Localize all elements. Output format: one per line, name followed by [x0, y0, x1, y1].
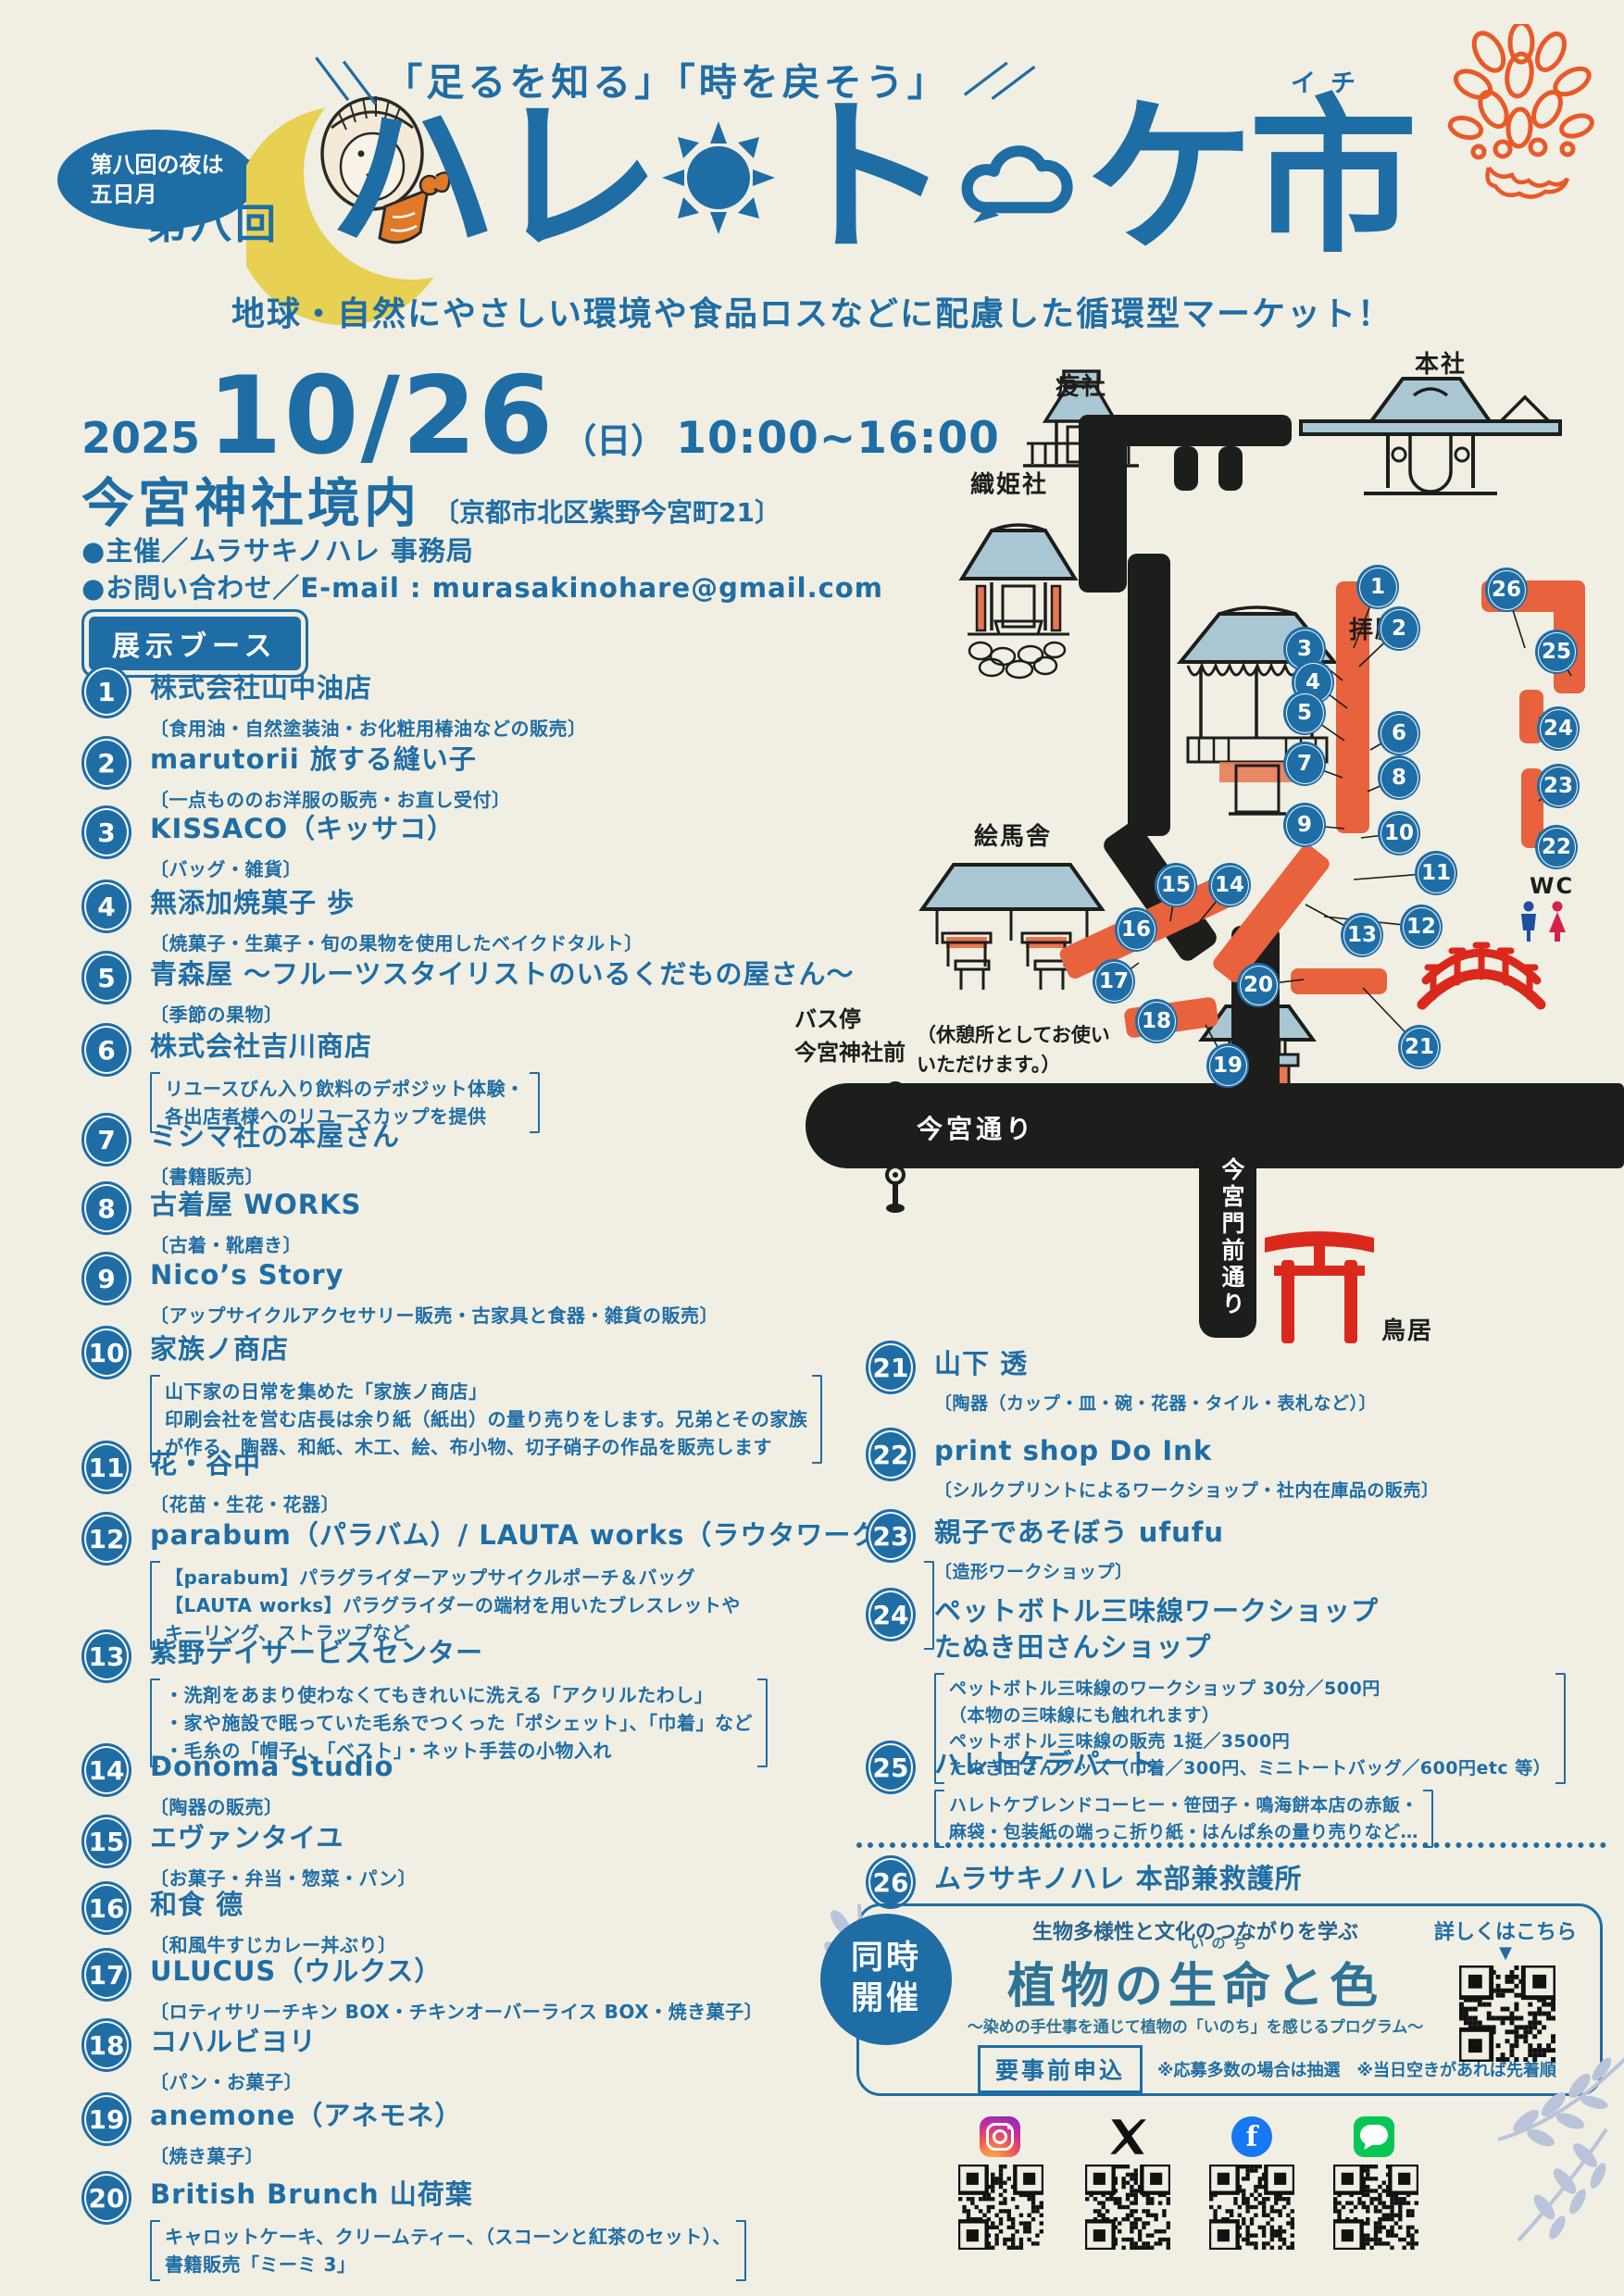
- poster: { "colors":{"blue":"#1f6da5","orange":"#…: [0, 0, 1624, 2296]
- title-char: レ: [492, 94, 655, 262]
- event-title: ハ レ ト ケ イチ市: [329, 78, 1412, 277]
- map-booth-markers: 1234567891011121314151617181920212223242…: [778, 329, 1624, 1356]
- booth-number: 15: [81, 1815, 131, 1868]
- social-x: [1107, 2116, 1148, 2161]
- booth-number: 18: [81, 2018, 131, 2072]
- title-furigana: イチ: [1291, 71, 1370, 96]
- booth-number: 17: [81, 1948, 131, 2002]
- booth-name: 家族ノ商店: [150, 1331, 822, 1367]
- booth-name: 株式会社山中油店: [150, 670, 587, 706]
- map-booth-number: 11: [1415, 851, 1457, 895]
- booth-item: 22print shop Do Ink〔シルクプリントによるワークショップ・社内…: [866, 1428, 1439, 1502]
- booth-number: 22: [866, 1428, 916, 1481]
- booth-item: 15エヴァンタイユ〔お菓子・弁当・惣菜・パン〕: [81, 1815, 417, 1890]
- booth-item: 3KISSACO（キッサコ）〔バッグ・雑貨〕: [81, 805, 455, 881]
- booth-description: 〔造形ワークショップ〕: [934, 1558, 1224, 1583]
- booth-name: ミシマ社の本屋さん: [150, 1118, 400, 1154]
- map-booth-number: 2: [1378, 606, 1420, 651]
- booth-number: 8: [81, 1181, 131, 1235]
- booth-description: ハレトケブレンドコーヒー・笹団子・鳴海餅本店の赤飯・ 麻袋・包装紙の端っこ折り紙…: [934, 1790, 1433, 1848]
- booth-item: 8古着屋 WORKS〔古着・靴磨き〕: [81, 1181, 361, 1257]
- flower-logo-icon: [1438, 24, 1600, 205]
- booth-description: 〔アップサイクルアクセサリー販売・古家具と食器・雑貨の販売〕: [150, 1301, 718, 1328]
- organizer: ●主催／ムラサキノハレ 事務局: [81, 530, 474, 568]
- booth-description: 〔パン・お菓子〕: [150, 2067, 317, 2094]
- line-icon: [1354, 2116, 1394, 2157]
- venue-row: 今宮神社境内 〔京都市北区紫野今宮町21〕: [81, 461, 781, 537]
- booth-name: 花・谷中: [150, 1446, 340, 1482]
- map-booth-number: 13: [1341, 913, 1383, 957]
- qr-code-x: [1085, 2165, 1170, 2250]
- booth-number: 4: [81, 880, 131, 933]
- booth-number: 10: [81, 1326, 131, 1379]
- booth-number: 12: [81, 1512, 131, 1566]
- event-day: （日）: [562, 413, 665, 463]
- booth-item: 23親子であそぼう ufufu〔造形ワークショップ〕: [866, 1509, 1224, 1583]
- booth-item: 7ミシマ社の本屋さん〔書籍販売〕: [81, 1113, 400, 1189]
- map-booth-number: 7: [1283, 742, 1326, 786]
- booth-number: 16: [81, 1881, 131, 1935]
- map-booth-number: 14: [1208, 863, 1251, 907]
- sub-event-tagline: ～染めの手仕事を通じて植物の「いのち」を感じるプログラム～: [959, 2014, 1431, 2037]
- booth-number: 23: [866, 1509, 916, 1563]
- booth-number: 25: [866, 1741, 916, 1794]
- booth-description: 〔陶器（カップ・皿・碗・花器・タイル・表札など）〕: [934, 1390, 1377, 1415]
- booth-name: ペットボトル三味線ワークショップ たぬき田さんショップ: [934, 1593, 1566, 1666]
- booth-item: 14Donoma Studio〔陶器の販売〕: [81, 1743, 394, 1819]
- booth-item: 20British Brunch 山荷葉キャロットケーキ、クリームティー、（スコ…: [81, 2171, 746, 2281]
- booth-number: 13: [81, 1629, 131, 1683]
- booth-number: 14: [81, 1743, 131, 1797]
- social-line: [1354, 2116, 1394, 2157]
- booth-item: 4無添加焼菓子 歩〔焼菓子・生菓子・旬の果物を使用したベイクドタルト〕: [81, 880, 643, 955]
- map-booth-number: 5: [1283, 691, 1326, 735]
- leaf-decoration: [1500, 2120, 1620, 2259]
- contact-email: ●お問い合わせ／E-mail : murasakinohare@gmail.co…: [81, 567, 883, 605]
- booth-name: Donoma Studio: [150, 1749, 394, 1785]
- booth-number: 3: [81, 805, 131, 859]
- map-booth-number: 15: [1155, 863, 1197, 907]
- title-char-ichi: イチ市: [1249, 94, 1412, 262]
- map-booth-number: 25: [1535, 630, 1578, 674]
- venue-address: 〔京都市北区紫野今宮町21〕: [433, 493, 781, 530]
- qr-code-facebook: [1209, 2165, 1294, 2250]
- sub-event-box: 同時 開催 生物多様性と文化のつながりを学ぶ 植物のいのち生命と色 ～染めの手仕…: [856, 1903, 1603, 2096]
- cloud-icon: [951, 127, 1081, 229]
- dotted-divider: [856, 1842, 1606, 1848]
- booth-item: 1株式会社山中油店〔食用油・自然塗装油・お化粧用椿油などの販売〕: [81, 665, 587, 741]
- booth-name: parabum（パラバム）/ LAUTA works（ラウタワークス）: [150, 1517, 934, 1554]
- booth-name: British Brunch 山荷葉: [150, 2177, 746, 2213]
- ruby-text: いのち: [1168, 1933, 1276, 1953]
- map-booth-number: 19: [1206, 1043, 1249, 1088]
- map-booth-number: 20: [1237, 963, 1280, 1007]
- edition-label: 第八回: [146, 191, 280, 250]
- venue-name: 今宮神社境内: [81, 461, 420, 537]
- more-info-label: 詳しくはこちら: [1413, 1915, 1598, 1945]
- map-booth-number: 18: [1135, 999, 1178, 1043]
- booth-description: 〔バッグ・雑貨〕: [150, 855, 455, 881]
- booth-item: 5青森屋 ～フルーツスタイリストのいるくだもの屋さん～〔季節の果物〕: [81, 951, 855, 1027]
- apply-required-badge: 要事前申込: [978, 2045, 1143, 2093]
- sun-icon: [660, 119, 777, 236]
- booth-name: 親子であそぼう ufufu: [934, 1515, 1224, 1551]
- booth-item: 18コハルビヨリ〔パン・お菓子〕: [81, 2018, 317, 2094]
- map-booth-number: 17: [1093, 959, 1135, 1004]
- map-booth-number: 24: [1537, 706, 1580, 751]
- down-arrow-icon: ▼: [1413, 1943, 1598, 1963]
- event-date: 10/26: [207, 363, 555, 470]
- booth-name: 紫野デイサービスセンター: [150, 1635, 768, 1671]
- booth-name: ムラサキノハレ 本部兼救護所: [934, 1861, 1303, 1897]
- booth-name: marutorii 旅する縫い子: [150, 742, 511, 778]
- booth-item: 19anemone（アネモネ）〔焼き菓子〕: [81, 2092, 462, 2168]
- sub-event-title: 植物のいのち生命と色: [968, 1947, 1422, 2016]
- title-char: ケ: [1086, 94, 1249, 262]
- title-char: ハ: [329, 94, 492, 262]
- booth-name: ULUCUS（ウルクス）: [150, 1953, 763, 1990]
- map-booth-number: 26: [1485, 568, 1528, 612]
- booth-name: ハレトケデパート: [934, 1746, 1433, 1782]
- booth-number: 7: [81, 1113, 131, 1167]
- booth-item: 25ハレトケデパートハレトケブレンドコーヒー・笹団子・鳴海餅本店の赤飯・ 麻袋・…: [866, 1741, 1433, 1848]
- booth-name: Nico’s Story: [150, 1257, 718, 1293]
- booth-item: 26ムラサキノハレ 本部兼救護所: [866, 1855, 1303, 1909]
- map-booth-number: 1: [1356, 565, 1399, 609]
- title-char: ト: [782, 94, 945, 262]
- map-booth-number: 8: [1378, 755, 1420, 800]
- booth-name: KISSACO（キッサコ）: [150, 811, 455, 847]
- booth-name: 無添加焼菓子 歩: [150, 885, 643, 921]
- booth-number: 6: [81, 1023, 131, 1077]
- sub-event-badge: 同時 開催: [820, 1914, 952, 2045]
- map-booth-number: 12: [1400, 905, 1443, 949]
- booth-name: 青森屋 ～フルーツスタイリストのいるくだもの屋さん～: [150, 956, 855, 992]
- map-booth-number: 23: [1537, 764, 1580, 808]
- booth-item: 11花・谷中〔花苗・生花・花器〕: [81, 1441, 340, 1516]
- booth-number: 11: [81, 1441, 131, 1494]
- booth-item: 17ULUCUS（ウルクス）〔ロティサリーチキン BOX・チキンオーバーライス …: [81, 1948, 763, 2024]
- booth-description: 〔焼き菓子〕: [150, 2141, 462, 2168]
- map-booth-number: 16: [1115, 907, 1157, 952]
- booth-number: 1: [81, 665, 131, 718]
- qr-code-line: [1333, 2165, 1418, 2250]
- event-year: 2025: [81, 413, 200, 463]
- x-icon: [1107, 2116, 1148, 2157]
- map-booth-number: 9: [1283, 803, 1326, 847]
- booth-number: 9: [81, 1252, 131, 1305]
- booth-name: 和食 德: [150, 1887, 397, 1923]
- map-booth-number: 22: [1535, 825, 1578, 869]
- booth-number: 24: [866, 1588, 916, 1641]
- booth-description: キャロットケーキ、クリームティー、（スコーンと紅茶のセット）、 書籍販売「ミーミ…: [150, 2220, 746, 2281]
- booth-item: 16和食 德〔和風牛すじカレー丼ぶり〕: [81, 1881, 397, 1957]
- map-booth-number: 6: [1378, 711, 1420, 755]
- facebook-icon: f: [1231, 2116, 1272, 2157]
- booth-name: print shop Do Ink: [934, 1433, 1439, 1469]
- booth-number: 2: [81, 736, 131, 790]
- booth-name: anemone（アネモネ）: [150, 2098, 462, 2134]
- booth-number: 5: [81, 951, 131, 1004]
- map-booth-number: 10: [1378, 811, 1420, 855]
- social-facebook: f: [1231, 2116, 1272, 2157]
- instagram-icon: [980, 2116, 1020, 2157]
- booth-name: コハルビヨリ: [150, 2024, 317, 2060]
- social-instagram: [980, 2116, 1020, 2157]
- booth-name: 株式会社吉川商店: [150, 1029, 540, 1065]
- booth-name: 古着屋 WORKS: [150, 1187, 361, 1223]
- booth-number: 20: [81, 2171, 131, 2225]
- booth-item: 9Nico’s Story〔アップサイクルアクセサリー販売・古家具と食器・雑貨の…: [81, 1252, 718, 1328]
- booth-item: 2marutorii 旅する縫い子〔一点もののお洋服の販売・お直し受付〕: [81, 736, 511, 812]
- qr-code-instagram: [958, 2165, 1043, 2250]
- booth-name: エヴァンタイユ: [150, 1820, 417, 1856]
- booth-number: 19: [81, 2092, 131, 2146]
- map-booth-number: 21: [1398, 1025, 1441, 1069]
- booth-description: 〔シルクプリントによるワークショップ・社内在庫品の販売〕: [934, 1477, 1439, 1502]
- venue-map: 今宮通り 今宮門前通り 疫社 本社 織姫社 拝殿 絵馬舎 （休憩所としてお使い …: [778, 329, 1624, 1356]
